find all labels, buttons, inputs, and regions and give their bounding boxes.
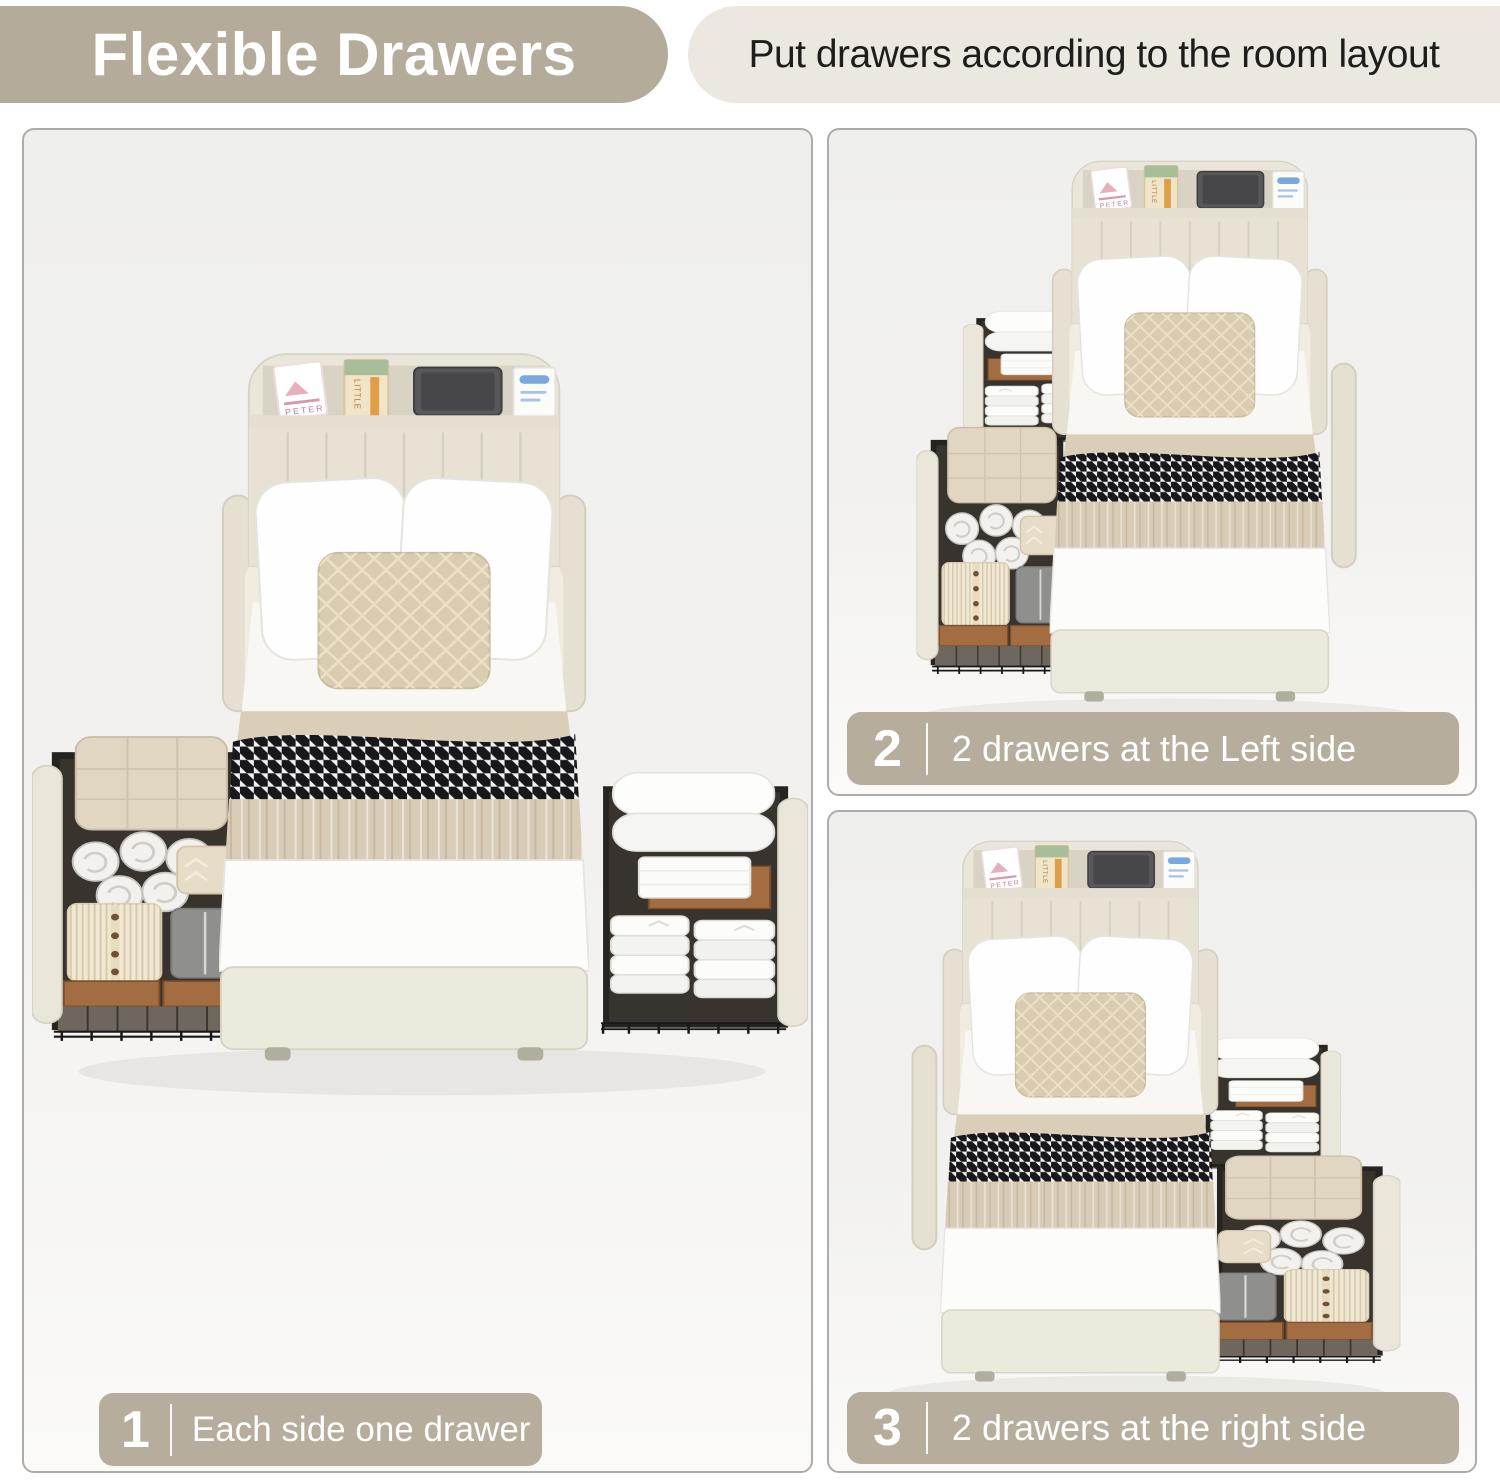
floor-shadow [79, 1048, 766, 1096]
panel-two-drawers-left: 2 2 drawers at the Left side [827, 128, 1477, 796]
caption-badge-2: 2 2 drawers at the Left side [847, 712, 1459, 785]
product-infographic: Flexible Drawers Put drawers according t… [0, 0, 1500, 1481]
panel-two-drawers-right: 3 2 drawers at the right side [827, 810, 1477, 1473]
step-number: 3 [847, 1398, 902, 1458]
caption-text: Each side one drawer [192, 1410, 531, 1450]
page-title: Flexible Drawers [92, 20, 577, 89]
divider [926, 1402, 928, 1454]
subtitle-text: Put drawers according to the room layout [748, 33, 1439, 77]
caption-text: 2 drawers at the Left side [952, 728, 1356, 770]
panel-each-side-one-drawer: 1 Each side one drawer [22, 128, 813, 1473]
caption-badge-3: 3 2 drawers at the right side [847, 1392, 1459, 1464]
title-badge: Flexible Drawers [0, 6, 668, 103]
bed [219, 354, 589, 1060]
storage-drawer-foot-left [916, 428, 1064, 674]
bed-both-sides-illustration [24, 130, 811, 1471]
step-number: 2 [847, 719, 902, 779]
closed-drawer-rail [1332, 364, 1356, 568]
caption-text: 2 drawers at the right side [952, 1407, 1366, 1449]
step-number: 1 [99, 1400, 150, 1460]
divider [170, 1404, 172, 1456]
bed-right-drawers-illustration [829, 812, 1475, 1471]
storage-drawer-upper-right [1204, 1038, 1341, 1170]
storage-drawer-left [32, 737, 239, 1041]
bed [940, 841, 1220, 1381]
bed [1050, 161, 1330, 701]
subtitle-banner: Put drawers according to the room layout [688, 6, 1500, 103]
caption-badge-1: 1 Each side one drawer [99, 1393, 542, 1466]
storage-drawer-foot-right [1215, 1156, 1400, 1363]
storage-drawer-right [601, 773, 808, 1034]
closed-drawer-rail [912, 1046, 936, 1250]
bed-left-drawers-illustration [829, 130, 1475, 794]
divider [926, 723, 928, 775]
